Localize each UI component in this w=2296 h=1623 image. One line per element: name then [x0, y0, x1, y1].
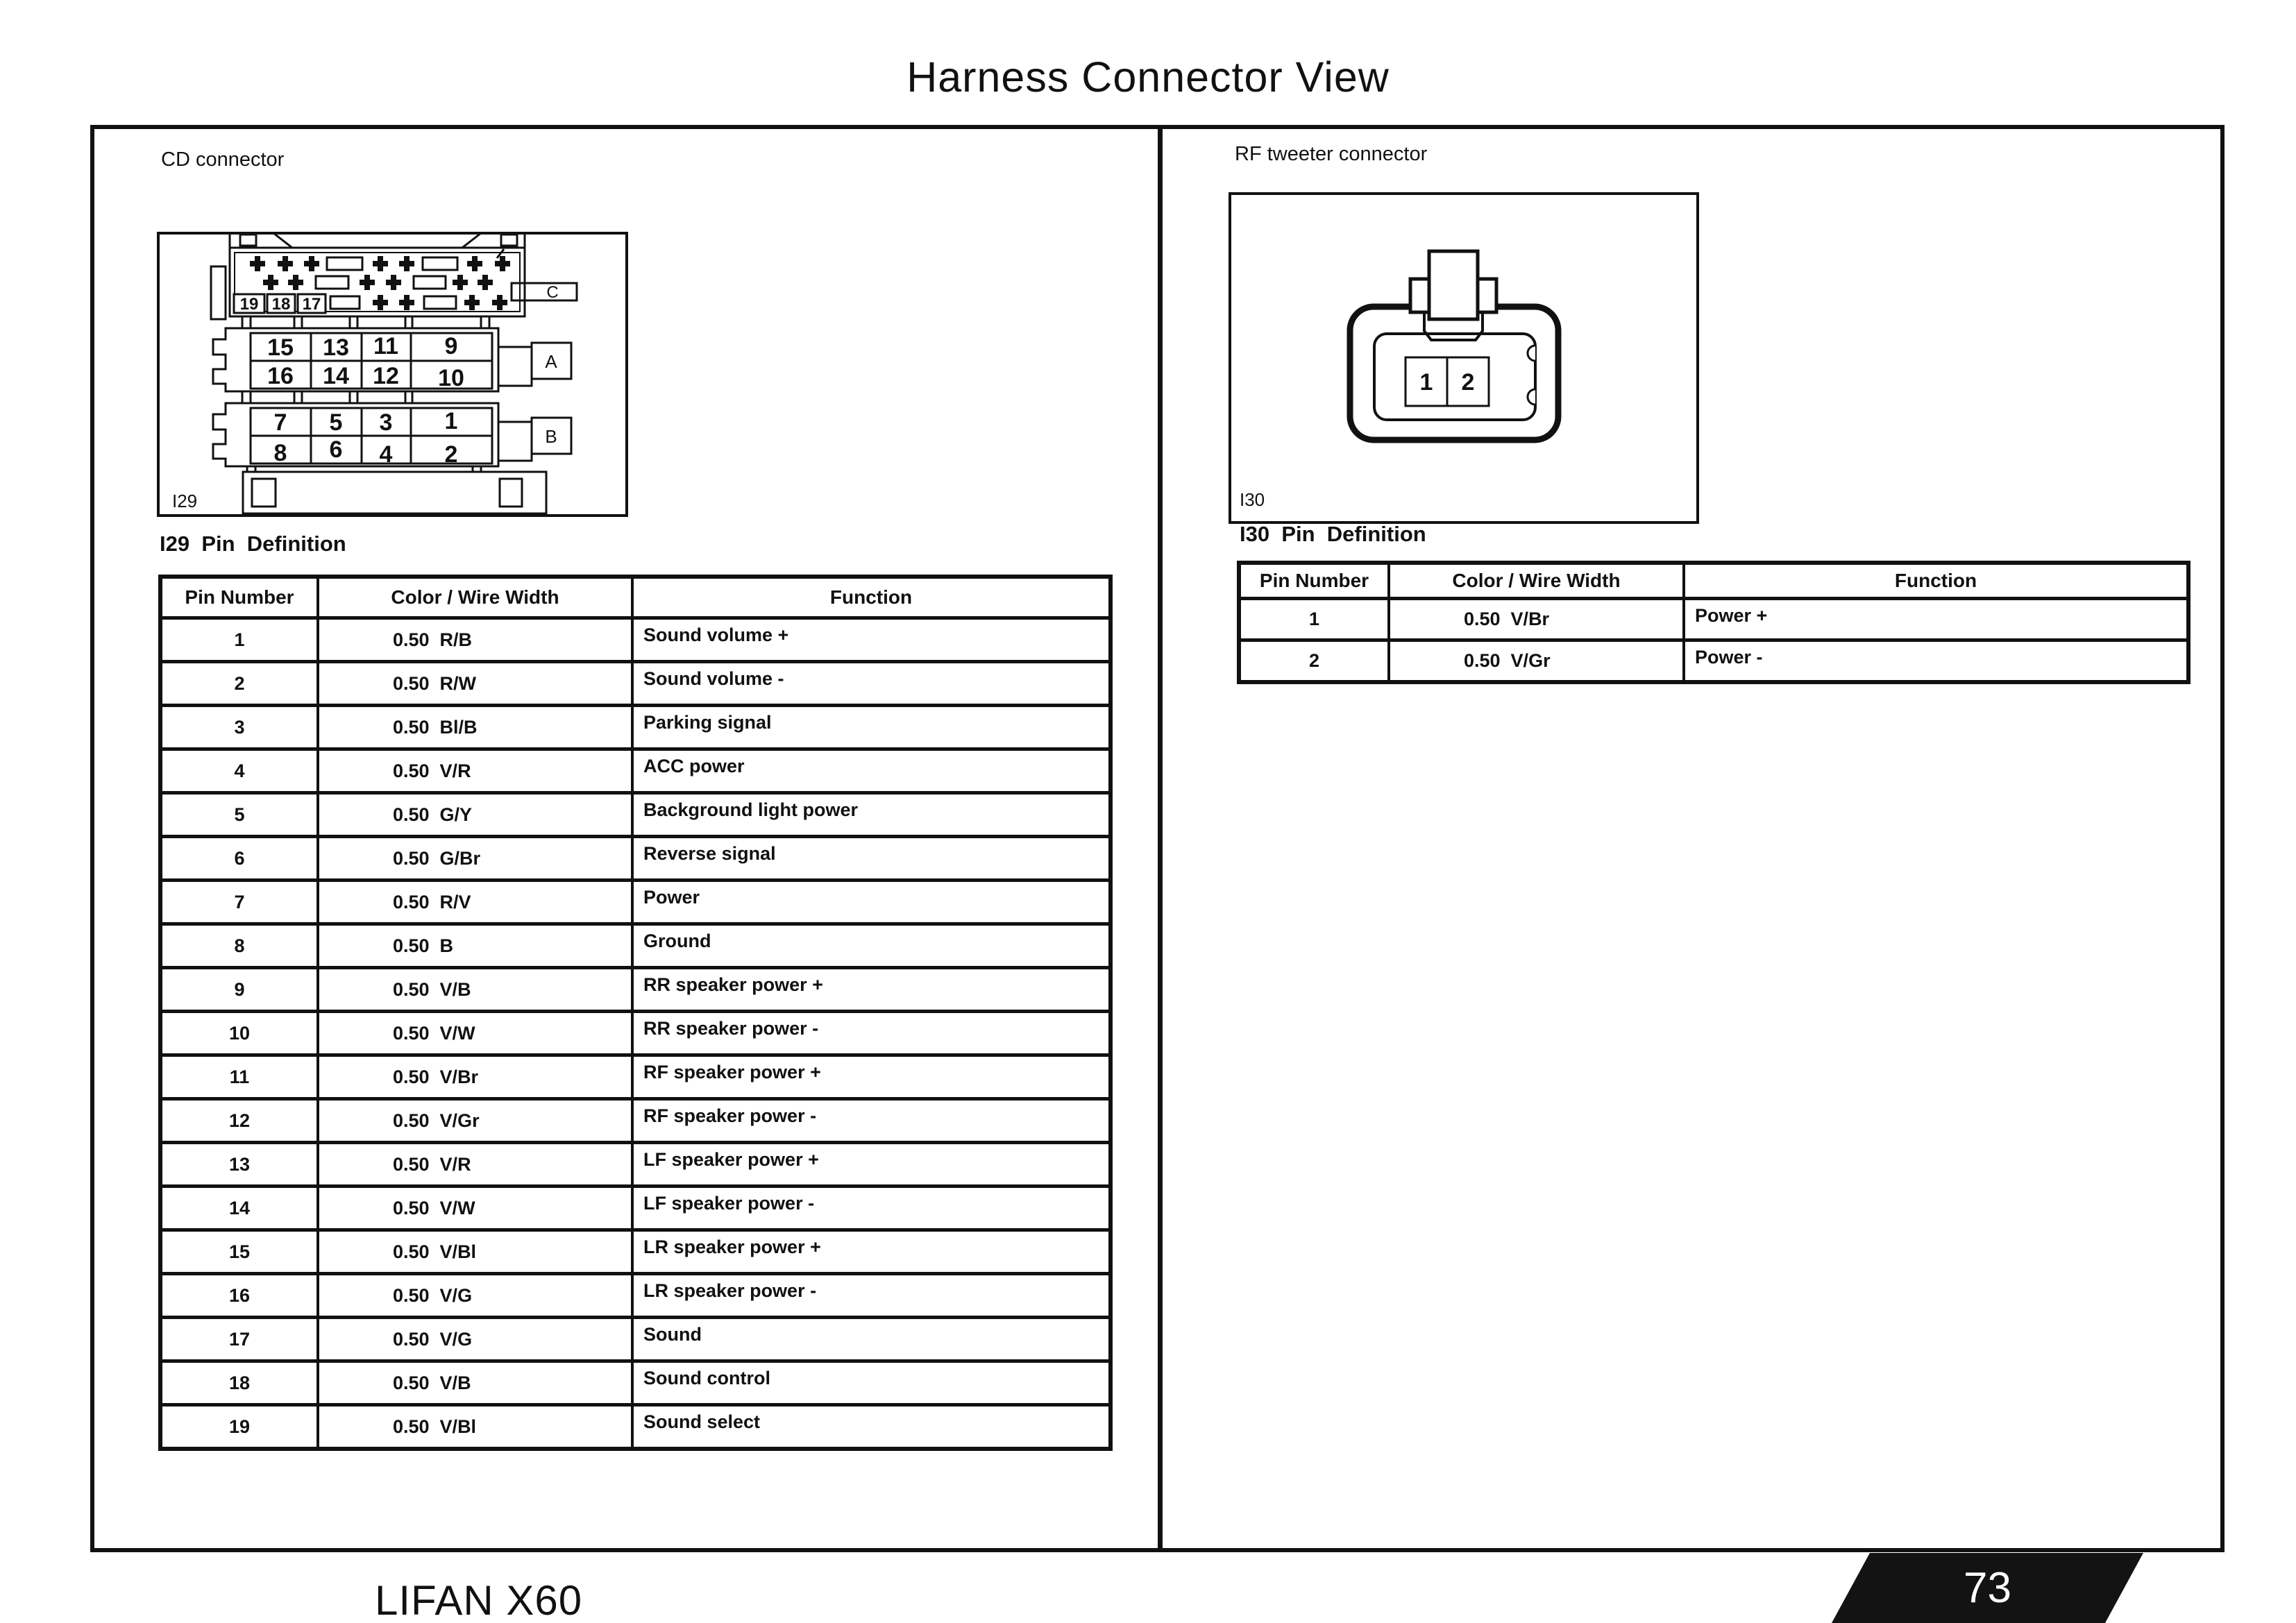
- color-wire-cell: 0.50 Bl/B: [318, 706, 632, 749]
- color-wire-cell: 0.50 G/Y: [318, 793, 632, 837]
- pin-number-cell: 14: [160, 1187, 318, 1230]
- function-cell: Sound: [632, 1318, 1111, 1361]
- color-wire-cell: 0.50 V/Br: [1389, 599, 1684, 640]
- grid-a-pin: 14: [323, 363, 349, 389]
- color-wire-cell: 0.50 V/B: [318, 1361, 632, 1405]
- pin-row: 10.50 R/BSound volume +: [160, 618, 1111, 662]
- function-cell: Power +: [1684, 599, 2188, 640]
- pin-row: 80.50 BGround: [160, 924, 1111, 968]
- function-cell: Parking signal: [632, 706, 1111, 749]
- column-header: Color / Wire Width: [318, 577, 632, 618]
- pin-number-cell: 13: [160, 1143, 318, 1187]
- column-header: Color / Wire Width: [1389, 563, 1684, 599]
- color-wire-cell: 0.50 V/W: [318, 1012, 632, 1055]
- pin-number-cell: 11: [160, 1055, 318, 1099]
- function-cell: RR speaker power +: [632, 968, 1111, 1012]
- grid-a-pin: 11: [373, 333, 398, 359]
- color-wire-cell: 0.50 V/Bl: [318, 1405, 632, 1450]
- color-wire-cell: 0.50 V/Bl: [318, 1230, 632, 1274]
- i30-pin-table: Pin NumberColor / Wire WidthFunction10.5…: [1237, 561, 2191, 684]
- pin-row: 170.50 V/GSound: [160, 1318, 1111, 1361]
- color-wire-cell: 0.50 R/W: [318, 662, 632, 706]
- grid-a-pin: 15: [267, 334, 294, 361]
- page-number-badge: 73: [1832, 1553, 2143, 1623]
- color-wire-cell: 0.50 V/B: [318, 968, 632, 1012]
- pin-number-cell: 6: [160, 837, 318, 881]
- grid-a-pin: 12: [373, 363, 399, 389]
- pin-row: 100.50 V/WRR speaker power -: [160, 1012, 1111, 1055]
- header-row: Pin NumberColor / Wire WidthFunction: [160, 577, 1111, 618]
- pin-row: 140.50 V/WLF speaker power -: [160, 1187, 1111, 1230]
- pin-number-cell: 17: [160, 1318, 318, 1361]
- footer-model-label: LIFAN X60: [375, 1577, 582, 1623]
- color-wire-cell: 0.50 R/B: [318, 618, 632, 662]
- function-cell: RR speaker power -: [632, 1012, 1111, 1055]
- grid-b-pin: 1: [445, 408, 458, 434]
- grid-b-pin: 8: [274, 440, 287, 466]
- grid-b-pin: 5: [330, 409, 343, 436]
- pin-row: 50.50 G/YBackground light power: [160, 793, 1111, 837]
- function-cell: Background light power: [632, 793, 1111, 837]
- pin-row: 70.50 R/VPower: [160, 881, 1111, 924]
- grid-a-pin: 13: [323, 334, 349, 361]
- grid-a-pin: 10: [438, 365, 464, 391]
- cd-grid-b-housing: [213, 403, 532, 466]
- function-cell: LR speaker power -: [632, 1274, 1111, 1318]
- i30-table-heading: I30 Pin Definition: [1240, 522, 1426, 547]
- function-cell: Power: [632, 881, 1111, 924]
- pin-number-cell: 15: [160, 1230, 318, 1274]
- tab-a-label: A: [545, 351, 557, 372]
- function-cell: Reverse signal: [632, 837, 1111, 881]
- pin-number-cell: 4: [160, 749, 318, 793]
- function-cell: Power -: [1684, 640, 2188, 683]
- color-wire-cell: 0.50 B: [318, 924, 632, 968]
- i29-table-heading: I29 Pin Definition: [160, 532, 346, 556]
- pin-number-cell: 5: [160, 793, 318, 837]
- function-cell: Sound volume +: [632, 618, 1111, 662]
- function-cell: Sound volume -: [632, 662, 1111, 706]
- pin-row: 30.50 Bl/BParking signal: [160, 706, 1111, 749]
- pin-row: 20.50 R/WSound volume -: [160, 662, 1111, 706]
- grid-b-pin: 7: [274, 409, 287, 436]
- function-cell: Sound select: [632, 1405, 1111, 1450]
- panel-divider: [1158, 125, 1163, 1552]
- function-cell: Sound control: [632, 1361, 1111, 1405]
- pin-row: 180.50 V/BSound control: [160, 1361, 1111, 1405]
- grid-a-pin: 16: [267, 363, 294, 389]
- header-row: Pin NumberColor / Wire WidthFunction: [1239, 563, 2188, 599]
- rf-connector-figure: 1 2 I30: [1229, 192, 1699, 524]
- color-wire-cell: 0.50 V/W: [318, 1187, 632, 1230]
- pin-number-cell: 12: [160, 1099, 318, 1143]
- color-wire-cell: 0.50 V/Br: [318, 1055, 632, 1099]
- pin-number-cell: 2: [1239, 640, 1389, 683]
- pin-number-cell: 7: [160, 881, 318, 924]
- pin-number-cell: 2: [160, 662, 318, 706]
- pin-number-cell: 3: [160, 706, 318, 749]
- grid-b-pin: 2: [445, 441, 458, 468]
- color-wire-cell: 0.50 G/Br: [318, 837, 632, 881]
- color-wire-cell: 0.50 V/G: [318, 1274, 632, 1318]
- page-number: 73: [1964, 1563, 2011, 1613]
- grid-b-pin: 6: [330, 436, 343, 463]
- color-wire-cell: 0.50 V/Gr: [1389, 640, 1684, 683]
- function-cell: RF speaker power -: [632, 1099, 1111, 1143]
- pin-number-cell: 18: [160, 1361, 318, 1405]
- connector-id-label: I30: [1240, 489, 1265, 510]
- pin-row: 90.50 V/BRR speaker power +: [160, 968, 1111, 1012]
- manual-page: Harness Connector View CD connector: [0, 0, 2296, 1623]
- pin-row: 40.50 V/RACC power: [160, 749, 1111, 793]
- column-header: Pin Number: [160, 577, 318, 618]
- function-cell: LF speaker power -: [632, 1187, 1111, 1230]
- color-wire-cell: 0.50 V/R: [318, 1143, 632, 1187]
- rf-pin-box: [1406, 357, 1489, 406]
- pin-number-cell: 19: [160, 1405, 318, 1450]
- pin-number-cell: 1: [160, 618, 318, 662]
- pin-row: 120.50 V/GrRF speaker power -: [160, 1099, 1111, 1143]
- rf-connector-label: RF tweeter connector: [1235, 143, 1427, 166]
- grid-b-pin: 4: [380, 441, 393, 468]
- function-cell: RF speaker power +: [632, 1055, 1111, 1099]
- pin-row: 20.50 V/GrPower -: [1239, 640, 2188, 683]
- color-wire-cell: 0.50 R/V: [318, 881, 632, 924]
- color-wire-cell: 0.50 V/G: [318, 1318, 632, 1361]
- rear-pin-17-label: 17: [303, 295, 321, 314]
- tab-b-label: B: [545, 426, 557, 447]
- column-header: Function: [632, 577, 1111, 618]
- page-title: Harness Connector View: [0, 53, 2296, 101]
- rf-pin-1-label: 1: [1420, 369, 1433, 396]
- column-header: Pin Number: [1239, 563, 1389, 599]
- cd-bottom-housing: [243, 472, 546, 513]
- pin-row: 10.50 V/BrPower +: [1239, 599, 2188, 640]
- color-wire-cell: 0.50 V/Gr: [318, 1099, 632, 1143]
- grid-b-pin: 3: [380, 409, 393, 436]
- pin-row: 60.50 G/BrReverse signal: [160, 837, 1111, 881]
- rf-pin-2-label: 2: [1462, 369, 1475, 396]
- rear-pin-19-label: 19: [240, 295, 259, 314]
- color-wire-cell: 0.50 V/R: [318, 749, 632, 793]
- pin-row: 130.50 V/RLF speaker power +: [160, 1143, 1111, 1187]
- pin-number-cell: 16: [160, 1274, 318, 1318]
- pin-number-cell: 8: [160, 924, 318, 968]
- pin-row: 110.50 V/BrRF speaker power +: [160, 1055, 1111, 1099]
- i29-pin-table: Pin NumberColor / Wire WidthFunction10.5…: [158, 575, 1113, 1451]
- pin-number-cell: 9: [160, 968, 318, 1012]
- function-cell: LF speaker power +: [632, 1143, 1111, 1187]
- column-header: Function: [1684, 563, 2188, 599]
- pin-row: 160.50 V/GLR speaker power -: [160, 1274, 1111, 1318]
- grid-a-pin: 9: [445, 333, 458, 359]
- rear-pin-18-label: 18: [272, 295, 291, 314]
- function-cell: LR speaker power +: [632, 1230, 1111, 1274]
- cd-connector-label: CD connector: [161, 148, 284, 171]
- rf-top-tab: [1410, 251, 1496, 340]
- tab-c-label: C: [546, 283, 558, 302]
- pin-number-cell: 10: [160, 1012, 318, 1055]
- pin-row: 190.50 V/BlSound select: [160, 1405, 1111, 1450]
- cd-connector-figure: 19 18 17 C 15 13 11 9 16 14 12 10 A 7 5 …: [157, 232, 628, 517]
- connector-id-label: I29: [172, 491, 197, 511]
- pin-number-cell: 1: [1239, 599, 1389, 640]
- pin-row: 150.50 V/BlLR speaker power +: [160, 1230, 1111, 1274]
- cd-tab-c: [512, 283, 577, 300]
- function-cell: ACC power: [632, 749, 1111, 793]
- function-cell: Ground: [632, 924, 1111, 968]
